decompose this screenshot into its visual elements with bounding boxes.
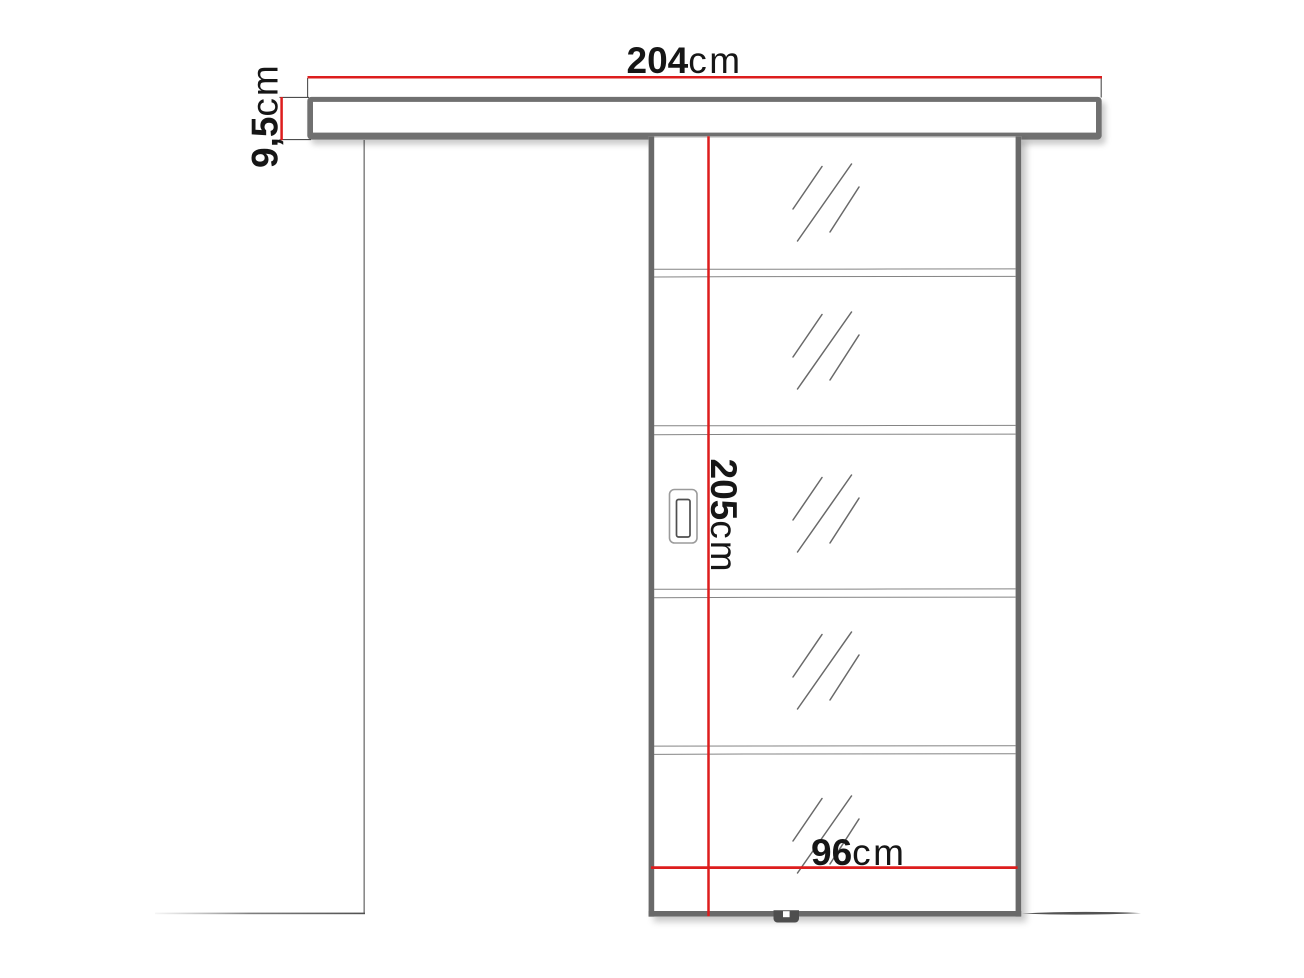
svg-text:204cm: 204cm [627,40,743,81]
svg-text:9,5cm: 9,5cm [245,63,286,168]
svg-text:205cm: 205cm [703,459,744,574]
svg-text:96cm: 96cm [811,832,906,873]
